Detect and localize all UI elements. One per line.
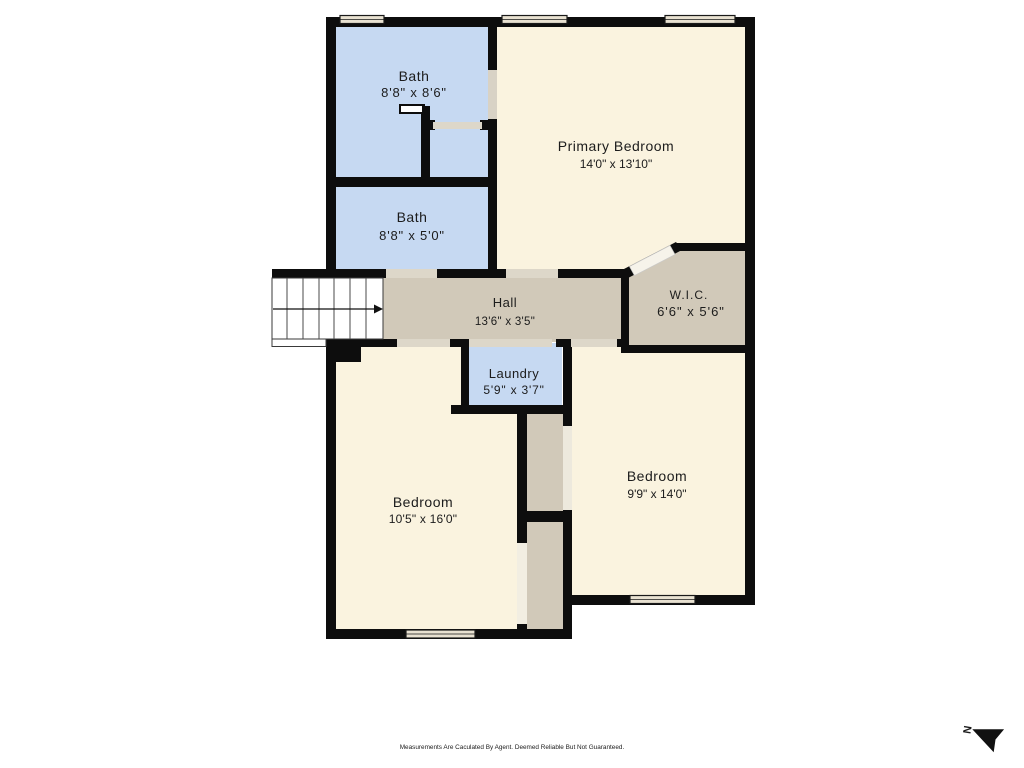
svg-text:Hall: Hall <box>493 295 517 310</box>
svg-text:Bath: Bath <box>397 209 428 225</box>
svg-text:8'8" x 5'0": 8'8" x 5'0" <box>379 228 445 243</box>
svg-text:14'0" x 13'10": 14'0" x 13'10" <box>580 157 653 171</box>
svg-text:Bedroom: Bedroom <box>627 468 687 484</box>
svg-text:Laundry: Laundry <box>489 366 539 381</box>
svg-text:W.I.C.: W.I.C. <box>670 288 709 302</box>
svg-text:Measurements Are Caculated By: Measurements Are Caculated By Agent. Dee… <box>400 744 625 751</box>
svg-text:N: N <box>960 725 973 735</box>
svg-text:Bedroom: Bedroom <box>393 494 453 510</box>
svg-text:10'5" x 16'0": 10'5" x 16'0" <box>389 512 457 526</box>
svg-text:6'6" x 5'6": 6'6" x 5'6" <box>657 304 725 319</box>
svg-text:Bath: Bath <box>399 68 430 84</box>
svg-text:5'9" x 3'7": 5'9" x 3'7" <box>483 383 544 397</box>
svg-text:8'8" x 8'6": 8'8" x 8'6" <box>381 85 447 100</box>
svg-text:Primary Bedroom: Primary Bedroom <box>558 138 674 154</box>
svg-text:9'9" x 14'0": 9'9" x 14'0" <box>627 487 686 501</box>
svg-text:13'6" x 3'5": 13'6" x 3'5" <box>475 316 535 328</box>
